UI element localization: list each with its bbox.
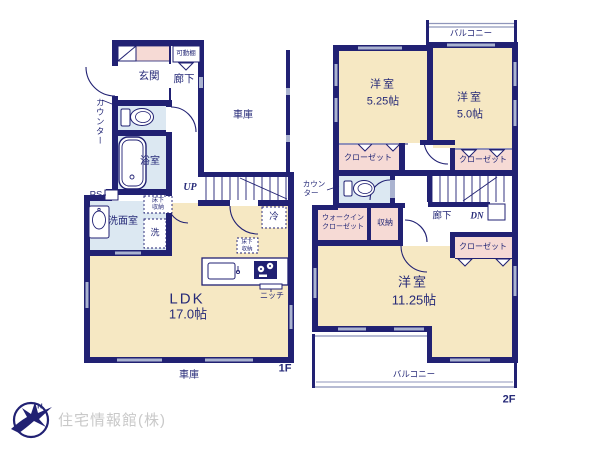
bathroom-label: 浴室	[140, 157, 160, 167]
entry-shelf	[136, 46, 170, 61]
hall-wic-door-arc	[405, 220, 427, 242]
garage-wall	[286, 50, 290, 172]
washbasin-icon	[89, 206, 109, 238]
closet2-label: クローゼット	[459, 156, 507, 164]
floorplan-page: 可動棚 玄関 廊下 カウンター 浴室 PS 洗面室 洗 床下 収納 UP 冷 床…	[0, 0, 600, 450]
shoe-cabinet	[118, 46, 136, 61]
garage-bottom-label: 車庫	[179, 371, 199, 381]
ldk-size-label: 17.0帖	[169, 308, 207, 321]
kitchen-counter	[202, 258, 288, 285]
company-logo	[11, 402, 52, 437]
closet3-label: クローゼット	[459, 243, 507, 251]
wic-label-line2: クローゼット	[322, 224, 364, 231]
underfloor1-label-line2: 収納	[152, 205, 164, 211]
room50-name-label: 洋室	[457, 93, 483, 104]
toilet-icon-2f	[344, 181, 375, 197]
floor1-label: 1F	[279, 364, 292, 375]
room525-size-label: 5.25帖	[367, 97, 399, 108]
underfloor2-label-line2: 収納	[241, 247, 252, 253]
entry-door-arc	[86, 67, 115, 96]
floor2-label: 2F	[503, 395, 516, 406]
stairs-up-label: UP	[183, 183, 196, 193]
stairs-down-label: DN	[471, 212, 484, 221]
compass-north-label: N	[37, 402, 42, 410]
balcony-top-label: バルコニー	[450, 29, 492, 38]
room50-size-label: 5.0帖	[457, 110, 483, 121]
sink-icon	[208, 263, 240, 279]
washroom-label: 洗面室	[108, 217, 138, 227]
hallway1-label: 廊下	[174, 74, 195, 85]
movable-shelf-label: 可動棚	[176, 51, 196, 58]
room1125-size-label: 11.25帖	[392, 294, 437, 307]
wic-label-line1: ウォークイン	[322, 215, 364, 222]
counter1-label: カウンター	[96, 98, 105, 146]
floor2-plan	[312, 20, 518, 388]
storage-label: 収納	[377, 219, 393, 227]
stove-icon	[254, 261, 277, 279]
garage-side-label: 車庫	[233, 111, 253, 121]
toilet1-door-arc	[171, 107, 196, 132]
ps-box	[103, 190, 118, 200]
closet1-label: クローゼット	[344, 154, 392, 162]
niche-label: ニッチ	[260, 292, 284, 300]
washer-label: 洗	[150, 229, 159, 238]
stairs-1f	[206, 177, 287, 200]
counter2-label-line2: ター	[304, 189, 319, 197]
counter2-label-line1: カウン	[303, 180, 326, 188]
genkan-label: 玄関	[139, 71, 160, 82]
company-name: 住宅情報館(株)	[58, 413, 166, 428]
underfloor1-label-line1: 床下	[152, 198, 164, 204]
floorplan-drawing	[0, 0, 600, 450]
room1125-name-label: 洋室	[398, 276, 428, 289]
ldk-label: LDK	[169, 292, 204, 307]
toilet-icon-1f	[121, 109, 154, 127]
hallway2-label: 廊下	[432, 211, 451, 221]
pipe-space-label: PS	[90, 190, 103, 200]
balcony-bottom-label: バルコニー	[393, 370, 435, 379]
room525-name-label: 洋室	[370, 80, 396, 91]
fridge-label: 冷	[269, 212, 279, 222]
stair-landing	[488, 204, 505, 220]
